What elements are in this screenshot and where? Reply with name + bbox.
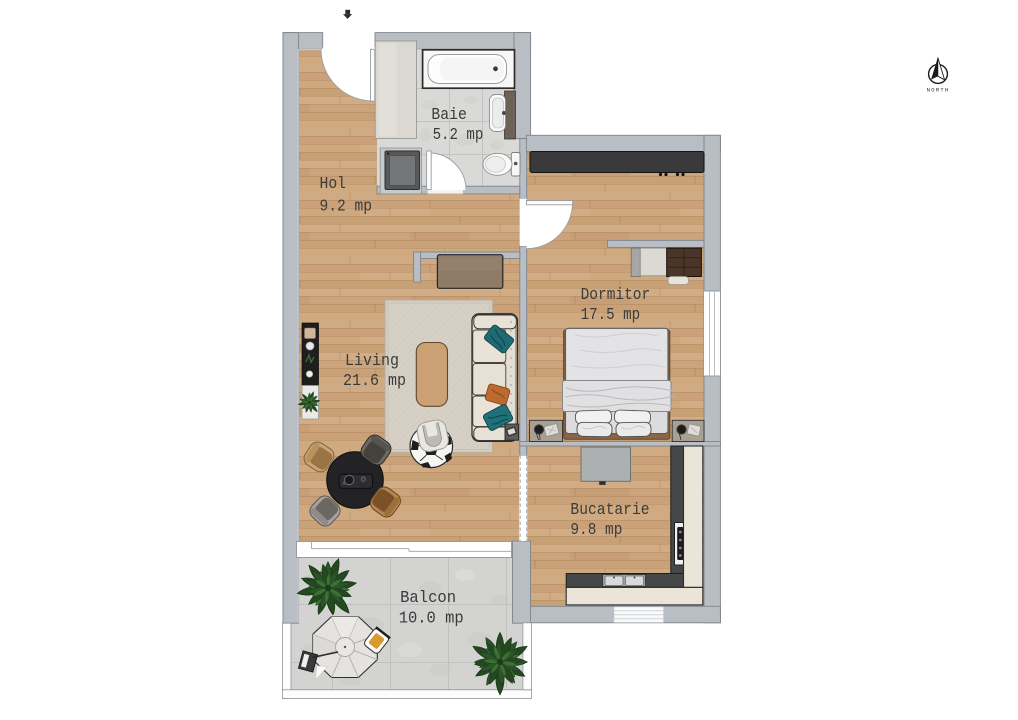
svg-text:Living: Living	[345, 352, 399, 371]
svg-text:5.2 mp: 5.2 mp	[433, 126, 484, 145]
svg-text:Balcon: Balcon	[400, 589, 456, 608]
svg-text:Hol: Hol	[320, 175, 347, 194]
svg-text:NORTH: NORTH	[927, 87, 950, 94]
svg-text:10.0 mp: 10.0 mp	[399, 610, 464, 629]
svg-text:21.6 mp: 21.6 mp	[343, 372, 406, 391]
svg-text:Baie: Baie	[431, 106, 466, 125]
svg-text:17.5 mp: 17.5 mp	[581, 306, 641, 325]
svg-text:Dormitor: Dormitor	[581, 286, 651, 305]
svg-text:9.8 mp: 9.8 mp	[570, 521, 622, 540]
svg-text:9.2 mp: 9.2 mp	[320, 198, 373, 217]
svg-text:Bucatarie: Bucatarie	[570, 501, 649, 520]
